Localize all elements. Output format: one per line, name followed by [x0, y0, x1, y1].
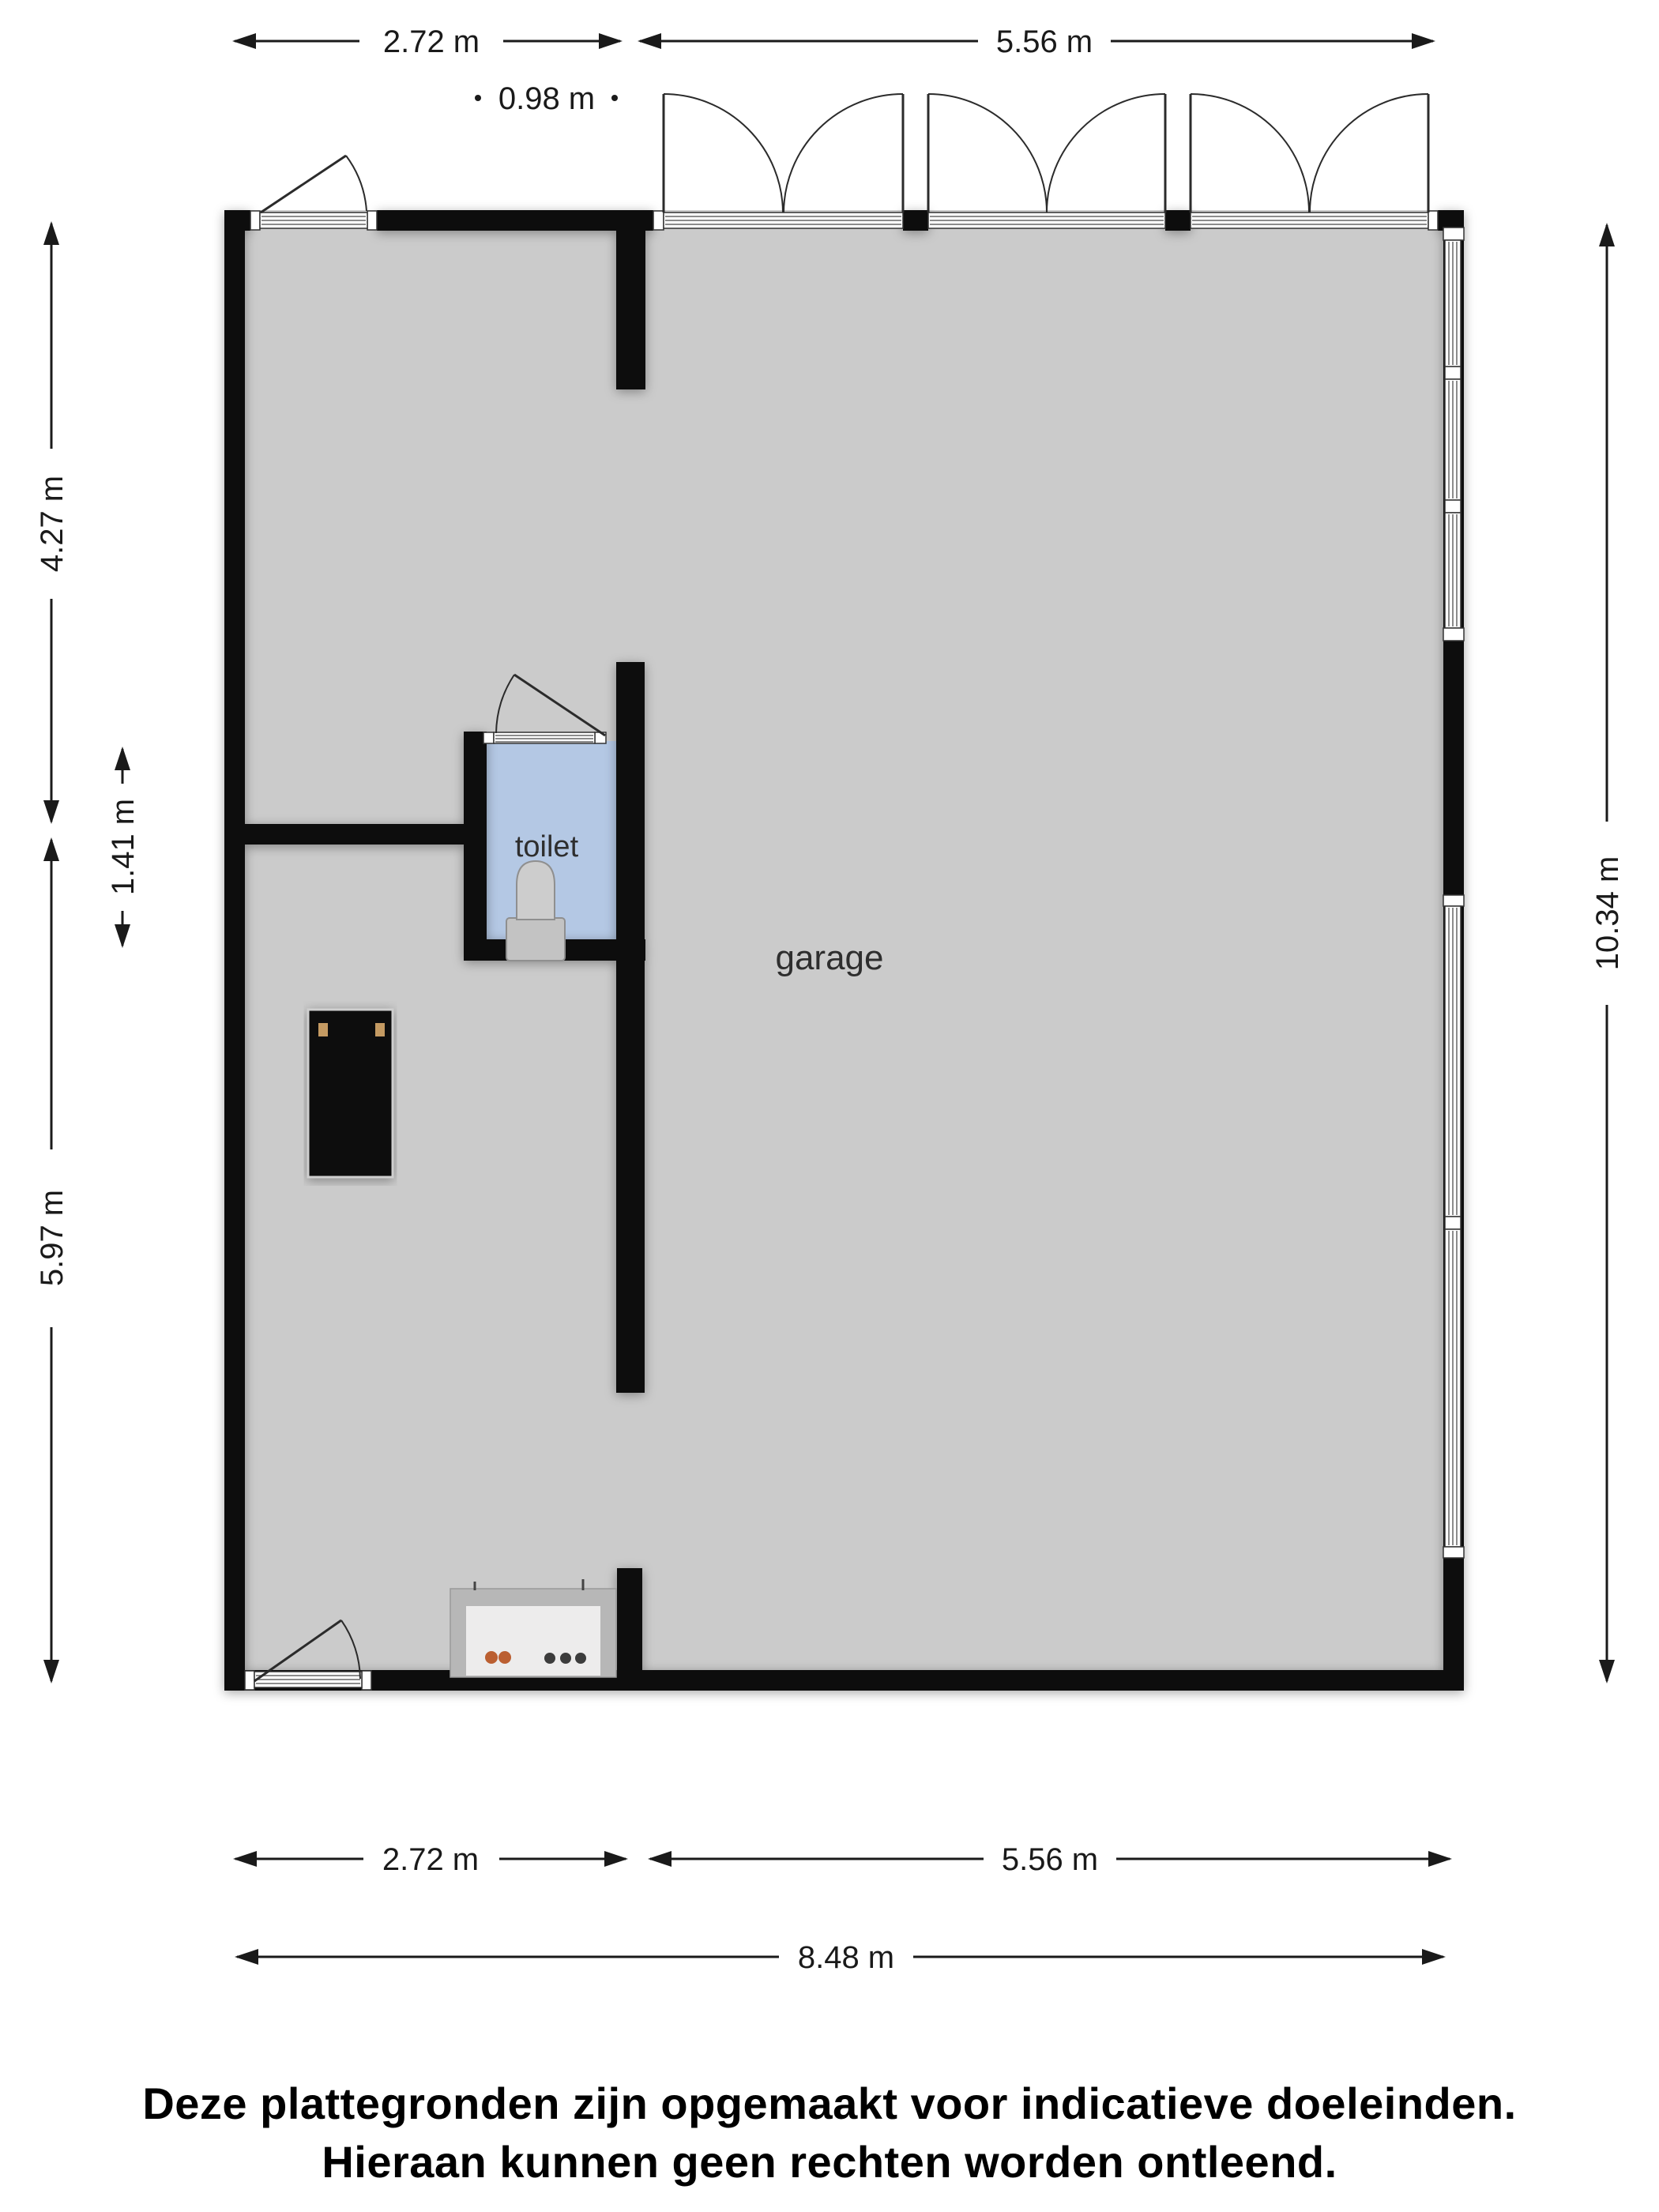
- double-door-icon: [1191, 94, 1438, 230]
- cabinet-hardware-icon: [318, 1023, 328, 1036]
- dimension-bottom-full: 8.48 m: [237, 1940, 1443, 1975]
- wall-partition-middle: [616, 662, 645, 1393]
- dimension-label: 5.56 m: [996, 24, 1093, 59]
- disclaimer-line-2: Hieraan kunnen geen rechten worden ontle…: [322, 2137, 1337, 2187]
- double-door-icon: [653, 94, 903, 230]
- dimension-left-toilet: 1.41 m: [106, 749, 141, 946]
- knob-dark-icon: [544, 1653, 555, 1664]
- dimension-right-full: 10.34 m: [1590, 225, 1625, 1681]
- room-label-garage: garage: [775, 939, 883, 977]
- dimension-top-inner: 0.98 m: [475, 81, 618, 116]
- knob-dark-icon: [575, 1653, 586, 1664]
- wall-top-corner-left: [224, 210, 250, 231]
- knob-orange-icon: [485, 1651, 498, 1664]
- double-door-icon: [928, 94, 1165, 228]
- entry-door-top-icon: [250, 156, 377, 230]
- dimension-bottom-left: 2.72 m: [235, 1842, 626, 1877]
- dimension-tick-icon: [475, 95, 481, 101]
- window-divider-icon: [1445, 367, 1461, 379]
- building: toilet garage: [224, 94, 1464, 1691]
- window-divider-icon: [1445, 500, 1461, 513]
- dimension-label: 2.72 m: [383, 24, 480, 59]
- cabinet: [308, 1010, 393, 1177]
- dimension-left-upper: 4.27 m: [35, 224, 70, 822]
- floor-plan-canvas: toilet garage 2.72 m 5.56 m 0.98 m 4.27 …: [0, 0, 1659, 2212]
- window-frame-icon: [1443, 628, 1464, 641]
- window-frame-icon: [1443, 228, 1464, 240]
- wall-mullion-1: [903, 210, 928, 231]
- floorplan-page: toilet garage 2.72 m 5.56 m 0.98 m 4.27 …: [0, 0, 1659, 2212]
- knob-dark-icon: [560, 1653, 571, 1664]
- dimension-label: 1.41 m: [106, 799, 141, 895]
- wall-left: [224, 210, 245, 1691]
- dimension-left-lower: 5.97 m: [35, 840, 70, 1681]
- wall-top-mid: [377, 210, 653, 231]
- dimension-label: 8.48 m: [798, 1940, 894, 1975]
- dimension-label: 10.34 m: [1590, 856, 1625, 971]
- wall-partition-upper: [616, 224, 645, 389]
- cabinet-hardware-icon: [375, 1023, 385, 1036]
- wall-mullion-2: [1165, 210, 1191, 231]
- dimension-label: 0.98 m: [498, 81, 595, 116]
- dimension-tick-icon: [611, 95, 618, 101]
- dimension-label: 5.56 m: [1002, 1842, 1098, 1877]
- workbench: [450, 1579, 616, 1677]
- dimension-label: 4.27 m: [35, 476, 70, 572]
- dimension-label: 2.72 m: [382, 1842, 479, 1877]
- room-label-toilet: toilet: [515, 830, 579, 863]
- window-divider-icon: [1445, 1217, 1461, 1229]
- dimension-top-left: 2.72 m: [235, 24, 620, 59]
- wall-partition-lower: [617, 1568, 642, 1691]
- window-frame-icon: [1443, 895, 1464, 906]
- wall-bottom: [224, 1670, 1464, 1691]
- dimension-label: 5.97 m: [35, 1190, 70, 1286]
- knob-orange-icon: [498, 1651, 511, 1664]
- window-frame-icon: [1443, 1547, 1464, 1558]
- wall-toilet-left: [464, 732, 487, 961]
- dimension-bottom-right: 5.56 m: [650, 1842, 1450, 1877]
- dimension-top-right: 5.56 m: [640, 24, 1433, 59]
- wall-stub-left: [224, 824, 487, 845]
- disclaimer-line-1: Deze plattegronden zijn opgemaakt voor i…: [142, 2078, 1516, 2128]
- disclaimer: Deze plattegronden zijn opgemaakt voor i…: [142, 2078, 1516, 2187]
